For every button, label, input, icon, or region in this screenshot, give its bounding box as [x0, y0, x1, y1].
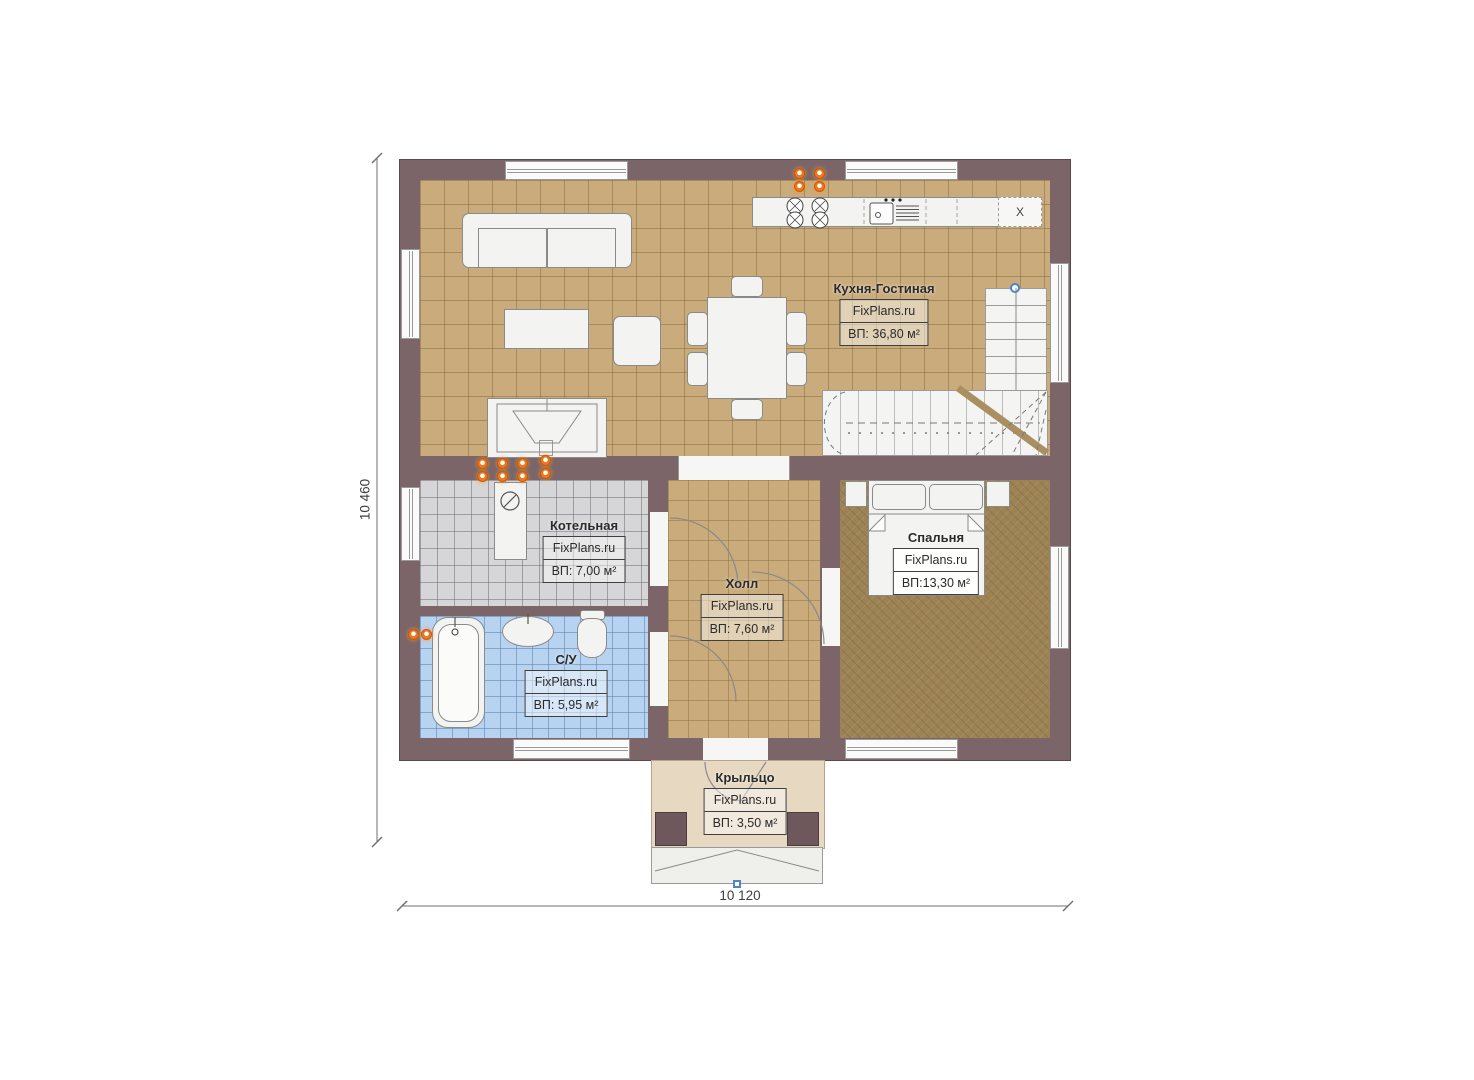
- window-top-right: [845, 161, 958, 180]
- area-text: ВП: 7,00 м²: [544, 560, 625, 582]
- pillow-right: [929, 484, 983, 510]
- socket-icon: [497, 458, 508, 482]
- gas-stub: [539, 440, 553, 456]
- area-text: ВП: 5,95 м²: [526, 694, 607, 716]
- window-right-bedroom: [1050, 546, 1069, 649]
- area-text: ВП: 7,60 м²: [702, 618, 783, 640]
- window-bottom-bedroom: [845, 739, 958, 759]
- area-text: ВП: 3,50 м²: [705, 812, 786, 834]
- room-name: С/У: [525, 652, 608, 667]
- dimension-bottom-label: 10 120: [700, 888, 780, 903]
- dining-chair-right-1: [786, 312, 807, 346]
- bathtub-inner: [438, 624, 479, 722]
- socket-icon: [408, 629, 432, 640]
- room-info-box: FixPlans.ru ВП: 3,50 м²: [704, 788, 787, 835]
- fridge-label: X: [1016, 205, 1024, 219]
- window-top-left: [505, 161, 628, 180]
- window-bottom-bathroom: [513, 739, 630, 759]
- room-info-box: FixPlans.ru ВП: 7,60 м²: [701, 594, 784, 641]
- stair-lower-flight: [822, 390, 1048, 456]
- brand-text: FixPlans.ru: [894, 549, 978, 572]
- room-info-box: FixPlans.ru ВП:13,30 м²: [893, 548, 979, 595]
- room-name: Крыльцо: [704, 770, 787, 785]
- coffee-table: [504, 309, 589, 349]
- armchair: [613, 316, 661, 366]
- brand-text: FixPlans.ru: [705, 789, 786, 812]
- socket-icon: [517, 458, 528, 482]
- nightstand-right: [986, 481, 1010, 507]
- dining-table: [707, 297, 787, 399]
- hall-opening: [678, 456, 790, 480]
- room-name: Котельная: [543, 518, 626, 533]
- window-right-stairs: [1050, 263, 1069, 383]
- fridge-cabinet: X: [998, 197, 1042, 227]
- socket-icon: [794, 168, 805, 192]
- nightstand-left: [845, 481, 867, 507]
- brand-text: FixPlans.ru: [544, 537, 625, 560]
- porch-post-left: [655, 812, 687, 846]
- bedroom-door-gap: [822, 568, 840, 646]
- dining-chair-bottom: [731, 399, 763, 420]
- window-left-boiler: [401, 487, 420, 561]
- porch-post-right: [787, 812, 819, 846]
- room-info-box: FixPlans.ru ВП: 5,95 м²: [525, 670, 608, 717]
- room-label-boiler: Котельная FixPlans.ru ВП: 7,00 м²: [543, 518, 626, 583]
- socket-icon: [814, 168, 825, 192]
- dimension-left-label: 10 460: [358, 465, 373, 535]
- area-text: ВП: 36,80 м²: [840, 323, 928, 345]
- room-name: Кухня-Гостиная: [833, 281, 934, 296]
- floor-plan-canvas: X: [0, 0, 1474, 1080]
- bathroom-sink: [502, 616, 554, 647]
- room-label-kitchen: Кухня-Гостиная FixPlans.ru ВП: 36,80 м²: [833, 281, 934, 346]
- brand-text: FixPlans.ru: [840, 300, 928, 323]
- room-name: Холл: [701, 576, 784, 591]
- sofa-cushion-right: [547, 228, 616, 268]
- brand-text: FixPlans.ru: [702, 595, 783, 618]
- window-left-living: [401, 249, 420, 339]
- dining-chair-top: [731, 276, 763, 297]
- dining-chair-right-2: [786, 352, 807, 386]
- stair-upper-flight: [985, 288, 1047, 391]
- porch-axis-marker: [733, 880, 741, 888]
- room-label-bedroom: Спальня FixPlans.ru ВП:13,30 м²: [893, 530, 979, 595]
- stair-entry-marker: [1010, 283, 1020, 293]
- room-label-bathroom: С/У FixPlans.ru ВП: 5,95 м²: [525, 652, 608, 717]
- room-label-hall: Холл FixPlans.ru ВП: 7,60 м²: [701, 576, 784, 641]
- front-door-gap: [703, 738, 768, 760]
- room-info-box: FixPlans.ru ВП: 7,00 м²: [543, 536, 626, 583]
- bathroom-door-gap: [650, 632, 668, 706]
- porch-steps: [651, 847, 823, 884]
- area-text: ВП:13,30 м²: [894, 572, 978, 594]
- dining-chair-left-2: [687, 352, 708, 386]
- boiler-unit: [494, 482, 527, 560]
- boiler-door-gap: [650, 512, 668, 586]
- brand-text: FixPlans.ru: [526, 671, 607, 694]
- socket-icon: [477, 458, 488, 482]
- room-label-porch: Крыльцо FixPlans.ru ВП: 3,50 м²: [704, 770, 787, 835]
- dining-chair-left-1: [687, 312, 708, 346]
- room-info-box: FixPlans.ru ВП: 36,80 м²: [839, 299, 929, 346]
- sofa-cushion-left: [478, 228, 547, 268]
- socket-icon: [540, 455, 551, 479]
- room-name: Спальня: [893, 530, 979, 545]
- pillow-left: [872, 484, 926, 510]
